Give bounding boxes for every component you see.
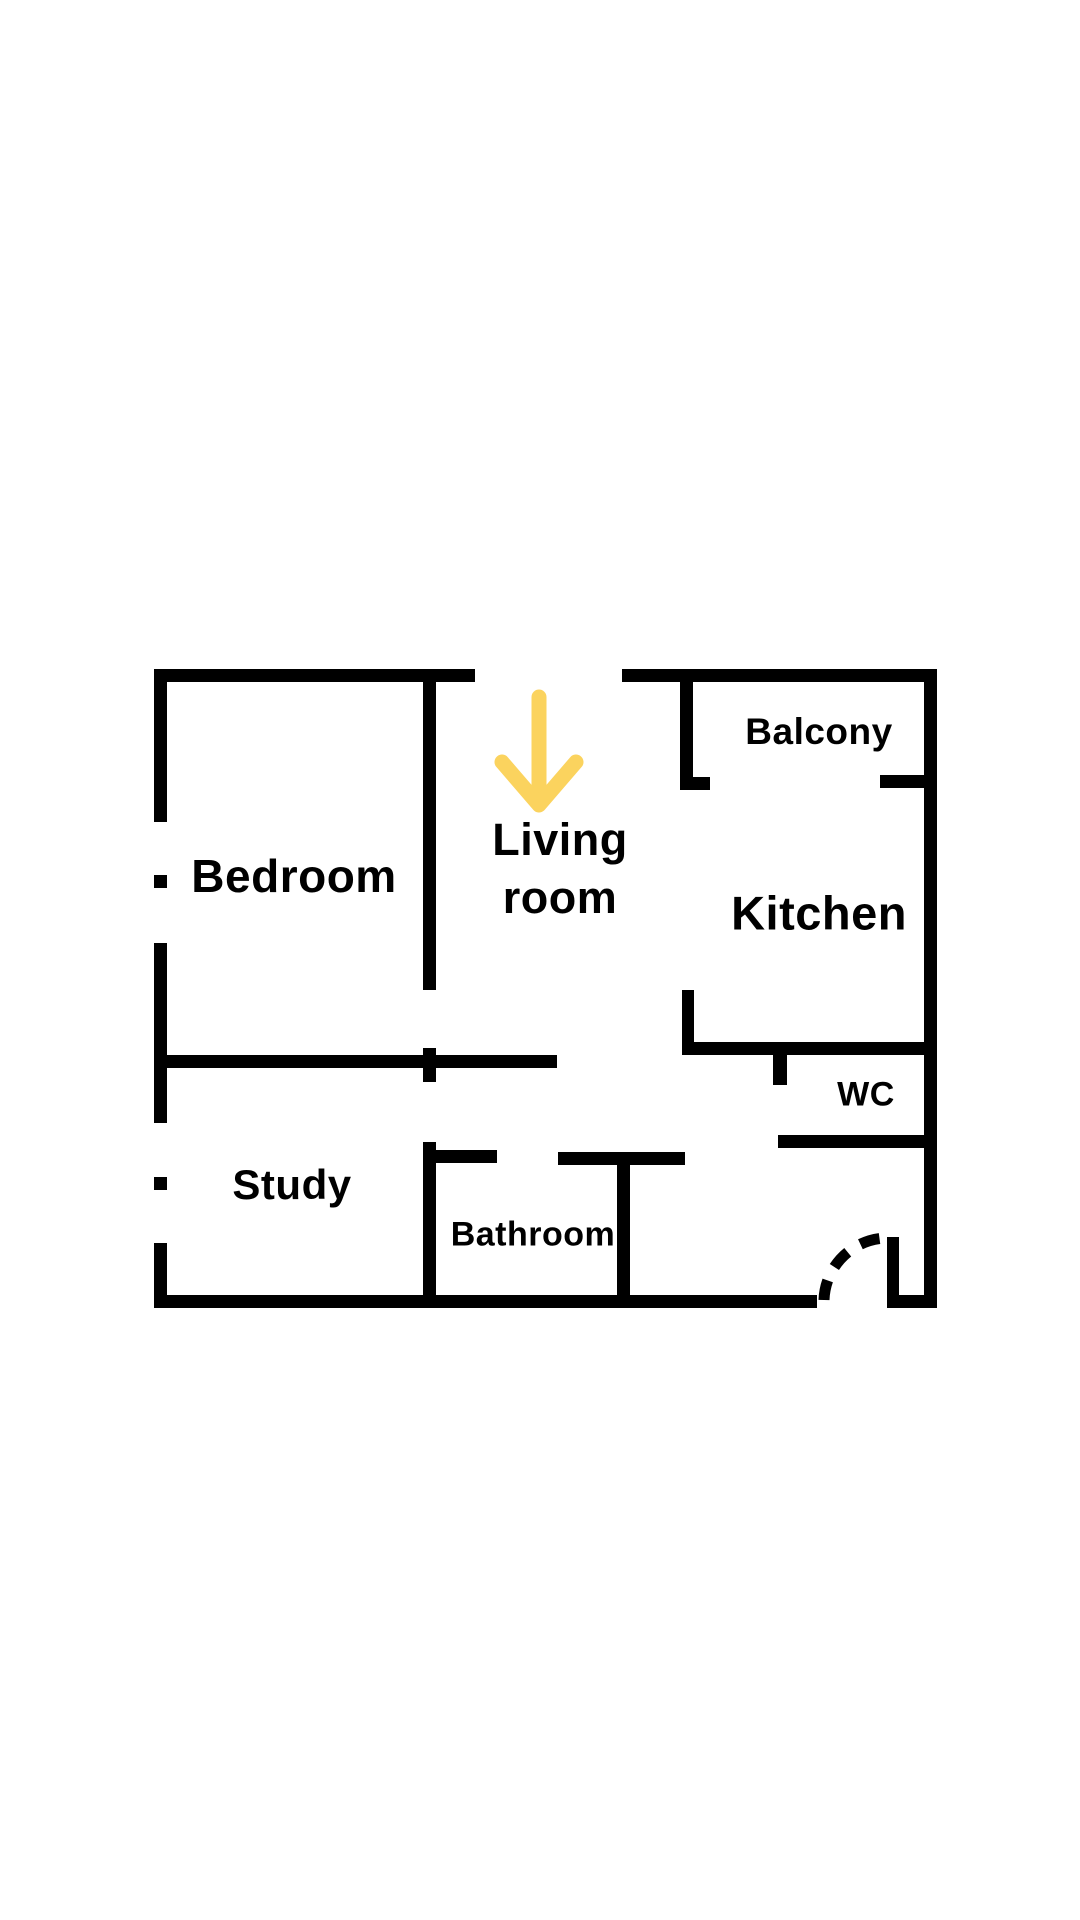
wall-kitchen-stub bbox=[682, 990, 694, 1042]
wall-bottom bbox=[154, 1295, 817, 1308]
room-label-living-room: Living room bbox=[450, 811, 670, 927]
room-label-bathroom: Bathroom bbox=[451, 1216, 616, 1255]
bedroom-window-dash bbox=[154, 875, 167, 888]
room-label-bedroom: Bedroom bbox=[191, 849, 396, 903]
wall-top-right bbox=[622, 669, 937, 682]
study-window-dash bbox=[154, 1177, 167, 1190]
wall-wc-bottom bbox=[778, 1135, 937, 1148]
wall-bedroom-living bbox=[423, 669, 436, 990]
wall-balcony-left bbox=[680, 671, 693, 790]
floor-plan-drawing bbox=[0, 0, 1080, 1920]
bedroom-door-tick bbox=[423, 1048, 436, 1082]
living-room-line1: Living bbox=[492, 814, 628, 865]
wall-right bbox=[924, 669, 937, 1308]
room-label-kitchen: Kitchen bbox=[731, 886, 907, 941]
down-arrow-icon bbox=[502, 697, 576, 805]
wall-bathroom-left bbox=[423, 1142, 436, 1295]
entrance-door-stub bbox=[887, 1237, 899, 1295]
wc-left-tick bbox=[773, 1055, 787, 1085]
room-label-study: Study bbox=[232, 1161, 351, 1209]
wall-left-middle bbox=[154, 943, 167, 1123]
wall-left-upper bbox=[154, 669, 167, 822]
room-label-wc: WC bbox=[837, 1076, 895, 1115]
wall-balcony-right-stub bbox=[880, 775, 937, 788]
floor-plan-page: Bedroom Living room Balcony Kitchen WC S… bbox=[0, 0, 1080, 1920]
wall-bathroom-top-a bbox=[433, 1150, 497, 1163]
wall-kitchen-bottom bbox=[682, 1042, 937, 1055]
wall-balcony-left-foot bbox=[680, 777, 710, 790]
wall-bathroom-right bbox=[617, 1160, 630, 1298]
entrance-door-arc bbox=[824, 1238, 888, 1300]
wall-bedroom-study bbox=[154, 1055, 557, 1068]
living-room-line2: room bbox=[503, 872, 618, 923]
room-label-balcony: Balcony bbox=[745, 711, 892, 753]
